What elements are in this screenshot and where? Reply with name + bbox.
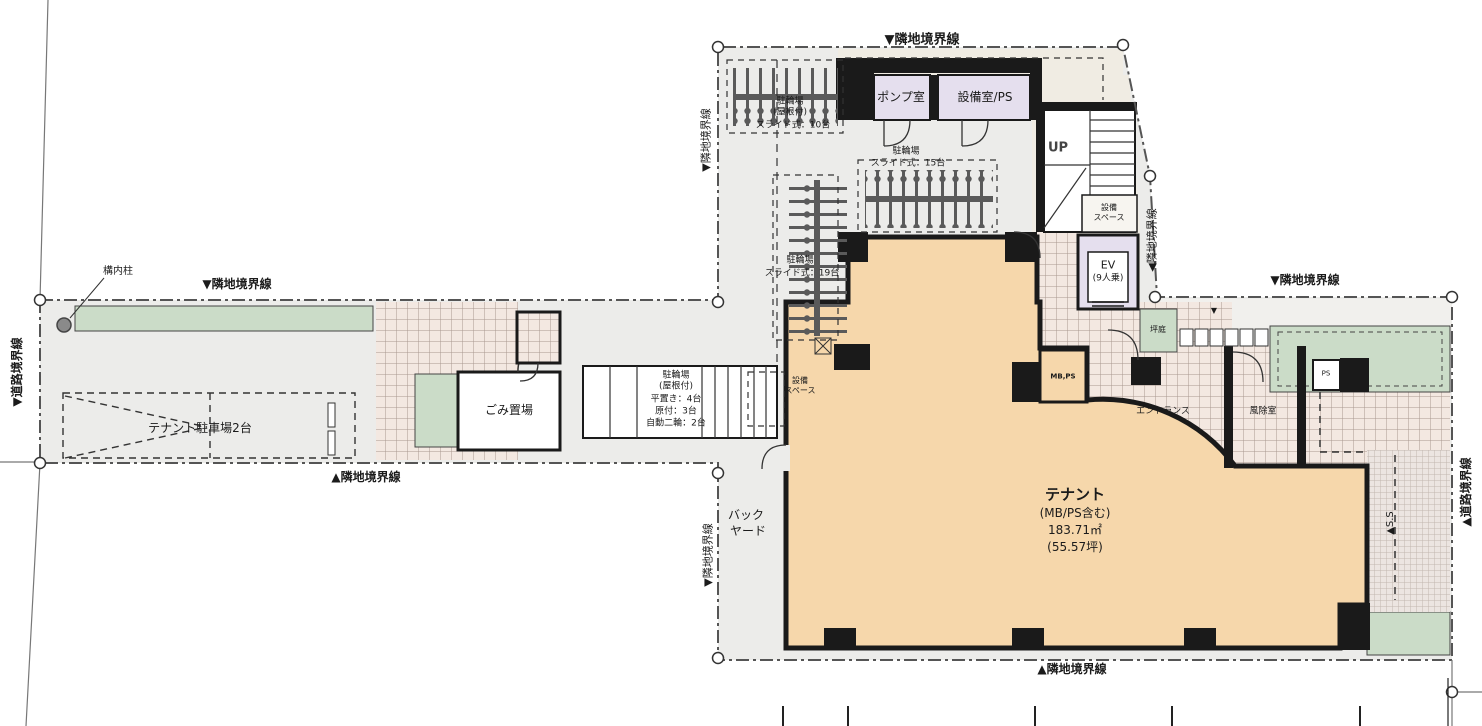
backyard-label-1: バック [728, 509, 764, 521]
boundary-label-top-upper: ▼隣地境界線 [885, 34, 960, 47]
boundary-label-road-left: ▼道路境界線 [11, 337, 23, 406]
equip-space-label-1a: 設備 [1101, 204, 1117, 212]
stair-up-label: UP [1048, 142, 1068, 155]
boundary-label-upper-left: ▼隣地境界線 [701, 108, 712, 171]
ev-label: EV [1101, 260, 1115, 271]
tenant-label-name: テナント [1045, 488, 1105, 503]
bike15-label-2: スライド式：15台 [871, 160, 945, 169]
boundary-label-backyard: ▼隣地境界線 [703, 523, 714, 586]
southeast-planter [1367, 612, 1450, 655]
ss-label: ▲S.S [1386, 511, 1396, 535]
equip-space-label-1b: スペース [1093, 214, 1124, 222]
west-bike-label-4: 原付：3台 [655, 408, 697, 417]
equip-space-label-2a: 設備 [792, 377, 808, 385]
entrance-label: エントランス [1136, 408, 1190, 417]
garden-label: 坪庭 [1150, 326, 1166, 334]
boundary-label-upper-right: ◀隣地境界線 [1147, 208, 1158, 271]
tenant-label-area-tsubo: (55.57坪) [1047, 541, 1103, 553]
ev-capacity-label: (9人乗) [1093, 275, 1124, 284]
green-square [415, 374, 458, 447]
west-bike-label-3: 平置き：4台 [651, 396, 702, 405]
bike10-label-3: スライド式：10台 [756, 122, 830, 131]
ps-label: PS [1322, 371, 1331, 378]
equip-space-label-2b: スペース [784, 387, 815, 395]
bike19-label-2: スライド式：19台 [765, 270, 839, 279]
west-bike-label-5: 自動二輪：2台 [646, 420, 706, 429]
garbage-label: ごみ置場 [485, 404, 533, 416]
backyard-label-2: ヤード [730, 525, 766, 537]
boundary-label-road-right: ▲道路境界線 [1460, 457, 1472, 526]
entry-box [517, 312, 560, 363]
west-bike-label-1: 駐輪場 [662, 372, 689, 381]
bike10-label-2: (屋根付) [773, 109, 807, 118]
west-planting-strip [75, 306, 373, 331]
grade-marker: ▼ [1211, 307, 1217, 315]
tenant-label-note: (MB/PS含む) [1040, 507, 1111, 519]
bike10-label-1: 駐輪場 [776, 98, 803, 107]
mb-ps-label: MB,PS [1050, 374, 1075, 381]
tenant-parking-label: テナント駐車場2台 [148, 422, 252, 434]
bike15-label-1: 駐輪場 [892, 148, 919, 157]
room-label-equipment: 設備室/PS [958, 91, 1013, 103]
boundary-label-top-west: ▼隣地境界線 [202, 278, 271, 290]
room-label-pump: ポンプ室 [877, 91, 925, 103]
bike19-label-1: 駐輪場 [786, 257, 813, 266]
ss-area [1367, 450, 1450, 612]
plan-geometry [0, 0, 1482, 726]
windbreak-label: 風除室 [1249, 408, 1276, 417]
floor-plan-canvas: ▼隣地境界線 ▼隣地境界線 ▼隣地境界線 ▲隣地境界線 ▲隣地境界線 ▼道路境界… [0, 0, 1482, 726]
boundary-label-bottom-main: ▲隣地境界線 [1037, 663, 1106, 675]
west-bike-label-2: (屋根付) [659, 383, 693, 392]
boundary-label-top-right: ▼隣地境界線 [1270, 274, 1339, 286]
pillar-label: 構内柱 [103, 267, 133, 277]
boundary-label-bottom-west: ▲隣地境界線 [331, 471, 400, 483]
site-pillar [57, 318, 71, 332]
tenant-label-area-sqm: 183.71㎡ [1048, 524, 1102, 536]
dimension-ticks [783, 706, 1360, 726]
